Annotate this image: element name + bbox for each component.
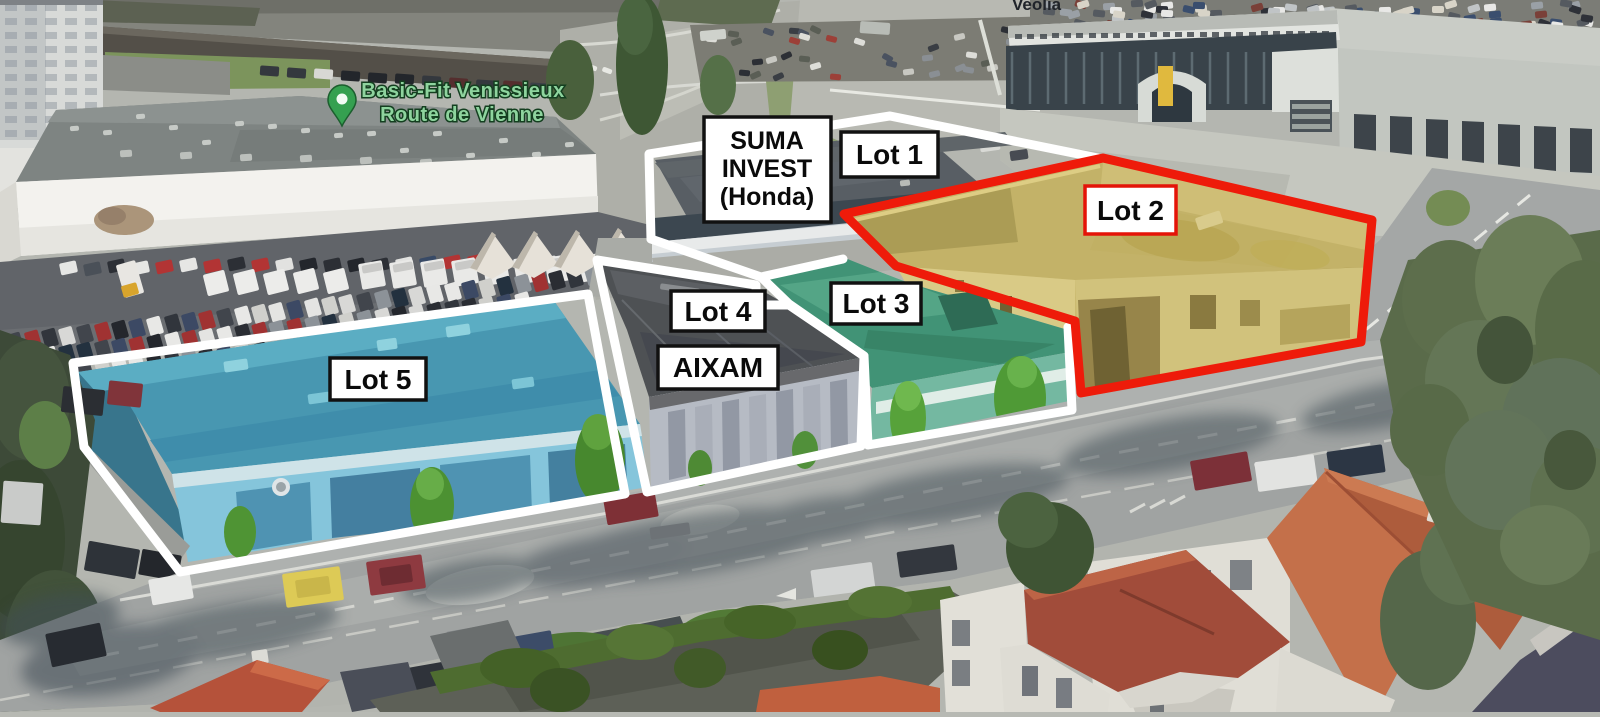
svg-text:Lot 4: Lot 4 bbox=[685, 296, 752, 327]
svg-text:Route de Vienne: Route de Vienne bbox=[380, 104, 544, 126]
svg-text:(Honda): (Honda) bbox=[720, 183, 814, 211]
svg-text:INVEST: INVEST bbox=[722, 155, 812, 183]
svg-text:Lot 2: Lot 2 bbox=[1097, 195, 1164, 226]
svg-text:AIXAM: AIXAM bbox=[673, 352, 763, 383]
svg-text:Lot 1: Lot 1 bbox=[856, 139, 923, 170]
svg-text:Veolia: Veolia bbox=[1012, 0, 1062, 14]
svg-text:Lot 3: Lot 3 bbox=[843, 288, 910, 319]
svg-text:Lot 5: Lot 5 bbox=[345, 364, 412, 395]
svg-text:SUMA: SUMA bbox=[730, 127, 804, 155]
svg-text:Basic-Fit Venissieux: Basic-Fit Venissieux bbox=[361, 80, 564, 102]
